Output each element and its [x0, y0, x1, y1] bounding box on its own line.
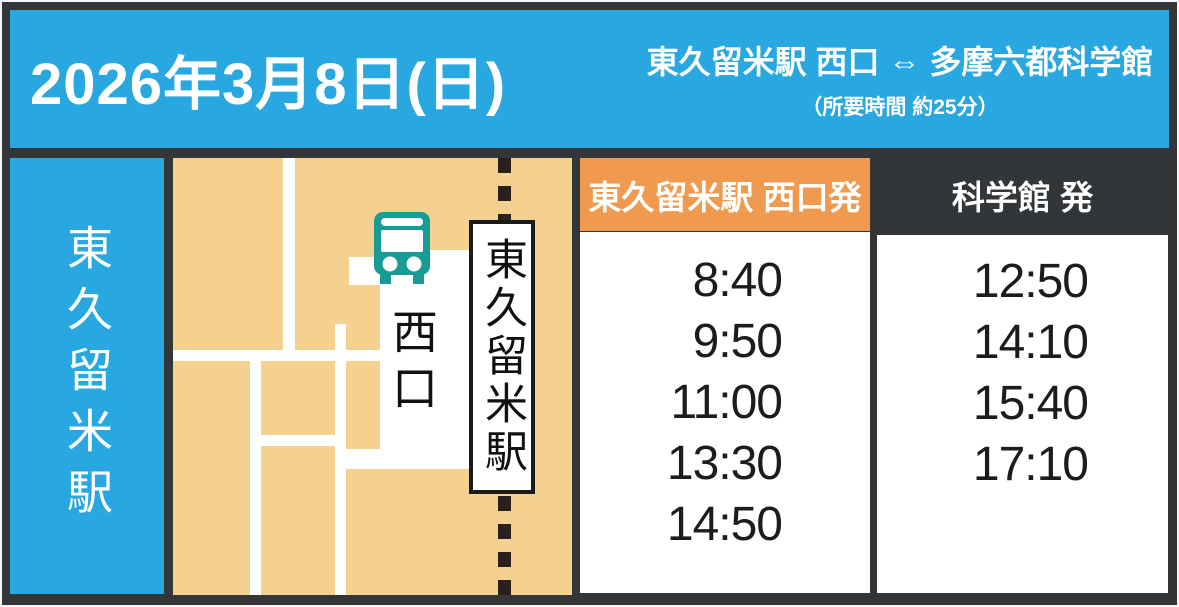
departure-time: 17:10 [877, 434, 1088, 495]
station-sidebar-label: 東久留米駅 [64, 224, 110, 529]
station-sidebar: 東久留米駅 [10, 158, 164, 594]
route-title: 東久留米駅 西口 ⇔ 多摩六都科学館 [647, 37, 1154, 83]
timetable-museum-departure-times: 12:50 14:10 15:40 17:10 [877, 235, 1168, 593]
west-exit-label: 西口 [389, 308, 435, 420]
map-road-horizontal-2 [252, 435, 346, 446]
railway-dashed-line-bottom [498, 496, 511, 595]
departure-time: 12:50 [877, 251, 1088, 312]
duration-note: （所要時間 約25分） [801, 91, 998, 121]
timetable-station-departure-times: 8:40 9:50 11:00 13:30 14:50 [580, 232, 870, 593]
map-road-vertical-3 [250, 360, 261, 595]
departure-time: 8:40 [580, 250, 782, 311]
header: 2026年3月8日(日) 東久留米駅 西口 ⇔ 多摩六都科学館 （所要時間 約2… [10, 10, 1169, 148]
departure-time: 15:40 [877, 373, 1088, 434]
departure-time: 13:30 [580, 433, 782, 494]
station-sign-label: 東久留米駅 [481, 237, 524, 477]
timetable-header-museum-departures: 科学館 発 [877, 158, 1168, 231]
map-panel: 西口 東久留米駅 [173, 158, 572, 595]
timetable-header-station-departures: 東久留米駅 西口発 [580, 158, 870, 231]
departure-time: 14:10 [877, 312, 1088, 373]
station-plaza-step-bottom [345, 449, 380, 469]
bus-icon [373, 212, 431, 284]
map-road-horizontal-1 [173, 350, 380, 361]
departure-time: 11:00 [580, 372, 782, 433]
date-title: 2026年3月8日(日) [30, 10, 506, 148]
timetable-poster: 2026年3月8日(日) 東久留米駅 西口 ⇔ 多摩六都科学館 （所要時間 約2… [0, 0, 1179, 607]
railway-dashed-line-top [498, 158, 511, 220]
station-sign: 東久留米駅 [469, 220, 535, 494]
departure-time: 9:50 [580, 311, 782, 372]
route-title-block: 東久留米駅 西口 ⇔ 多摩六都科学館 （所要時間 約25分） [640, 10, 1160, 148]
map-road-vertical-1 [283, 158, 295, 361]
departure-time: 14:50 [580, 494, 782, 555]
